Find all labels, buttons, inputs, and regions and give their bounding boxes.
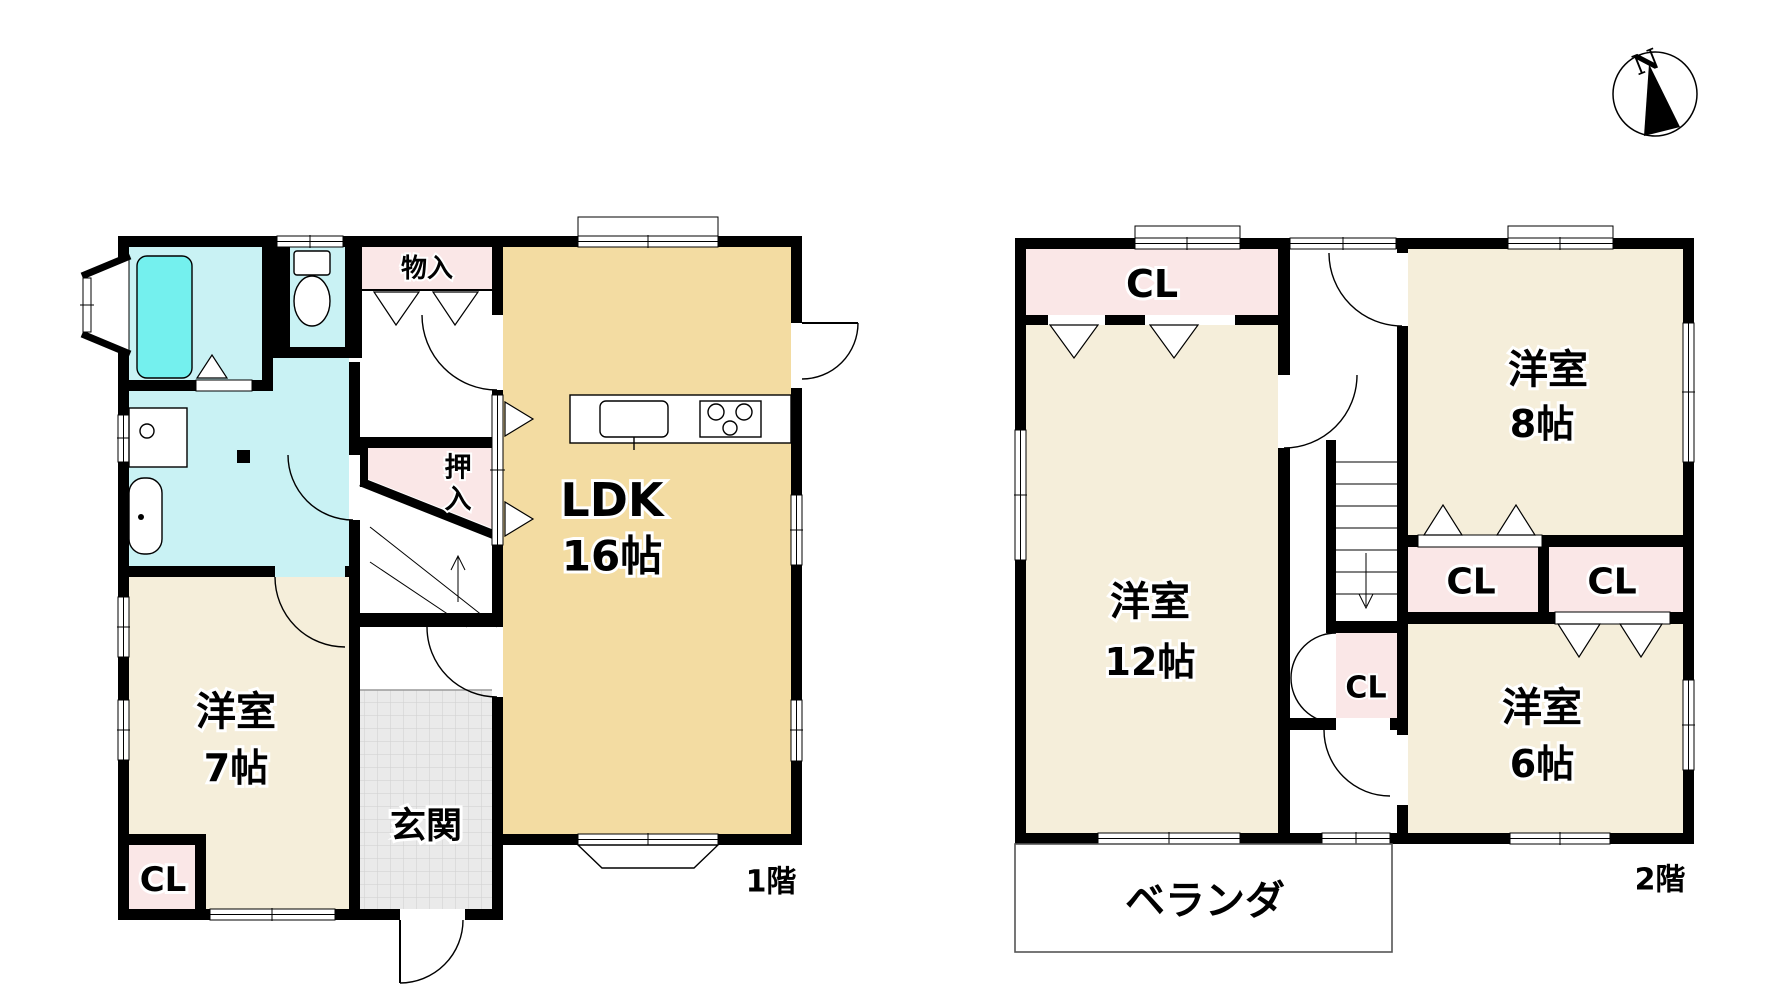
storage-door-mark-2 [433,292,478,325]
room-label-west7-name: 洋室 [196,689,276,735]
room-label-oshiire-2: 入 [445,485,472,516]
window-west-room-left-1 [117,597,130,657]
opening-closet8 [1418,535,1542,547]
floor1-label: 1階 [746,865,797,900]
bathroom-bay-window [80,256,130,354]
window-ldk-bottom-slider [578,833,718,846]
room-label-oshiire-1: 押 [445,453,472,484]
veranda-label: ベランダ [1125,878,1285,924]
window-room12-left [1014,430,1027,560]
room-label-ldk-name: LDK [560,473,665,527]
washbasin-counter [129,408,187,467]
room-label-room6-size: 6帖 [1510,742,1574,786]
entrance-tile-pattern [360,690,492,909]
storage-door-mark-1 [374,292,419,325]
room-label-room8-size: 8帖 [1510,402,1574,446]
floorplan-page: 物入 押 入 LDK 16帖 洋室 7帖 玄関 CL 1階 [0,0,1785,998]
window-room6-right [1682,680,1695,770]
washbasin-bowl [129,478,162,554]
window-washroom-left [117,415,130,462]
room-label-room12-name: 洋室 [1110,579,1190,625]
floorplan-canvas: 物入 押 入 LDK 16帖 洋室 7帖 玄関 CL 1階 [0,0,1785,998]
window-west-room-bottom [210,908,335,921]
door-arc-hall-ldk-bottom [427,627,497,697]
door-arc-hall-ldk-top [422,315,497,390]
window-f2-top-bump-2 [1508,226,1613,250]
door-entrance [400,920,463,983]
room-label-closet-stair: CL [1345,671,1386,706]
toilet-fixture [294,251,330,326]
floor2-stairs [1336,462,1397,608]
room-label-entrance: 玄関 [390,806,462,847]
oshiire-sliding-panel [490,395,505,545]
window-room6-bottom [1510,832,1610,845]
window-west-room-left-2 [117,700,130,760]
room-label-room8-name: 洋室 [1508,347,1588,393]
washroom-dot [237,450,250,463]
window-toilet-top [277,235,343,248]
floor2-plan: CL 洋室 12帖 洋室 8帖 CL CL CL 洋室 6帖 ベランダ 2階 [1014,226,1695,952]
room-label-ldk-size: 16帖 [562,532,662,581]
room-label-west7-size: 7帖 [204,746,268,790]
room-label-closet-mid-left: CL [1446,562,1495,603]
window-ldk-right-2 [790,700,803,761]
window-veranda-door [1322,832,1390,845]
door-arc-room12 [1284,375,1357,448]
compass: N [1613,42,1697,136]
opening-closet6 [1555,612,1670,624]
room-label-closet-mid-right: CL [1587,562,1636,603]
window-ldk-right-1 [790,495,803,565]
window-f2-top-flush [1290,237,1396,250]
kitchen-counter [570,395,791,450]
bathtub [137,256,192,378]
door-ldk-right-exterior [802,323,858,379]
ldk-porch-step [578,845,718,868]
window-room8-right [1682,323,1695,462]
room-label-room12-size: 12帖 [1105,640,1196,684]
floor1-plan: 物入 押 入 LDK 16帖 洋室 7帖 玄関 CL 1階 [80,217,858,983]
kitchen-sink [600,401,668,437]
room-label-storage-top: 物入 [401,254,453,284]
floor2-label: 2階 [1635,863,1686,898]
room-label-room6-name: 洋室 [1502,685,1582,731]
door-arc-hall-bottom [1324,730,1390,796]
window-f2-top-bump-1 [1135,226,1240,250]
window-kitchen-bump [578,217,718,248]
folding-door-closet-stair [1291,633,1336,723]
window-room12-bottom [1098,832,1240,845]
room-label-closet1f: CL [140,860,187,900]
room-label-closet-nw: CL [1126,262,1178,306]
door-arc-room8 [1329,253,1402,326]
floor1-stairs [370,527,497,627]
